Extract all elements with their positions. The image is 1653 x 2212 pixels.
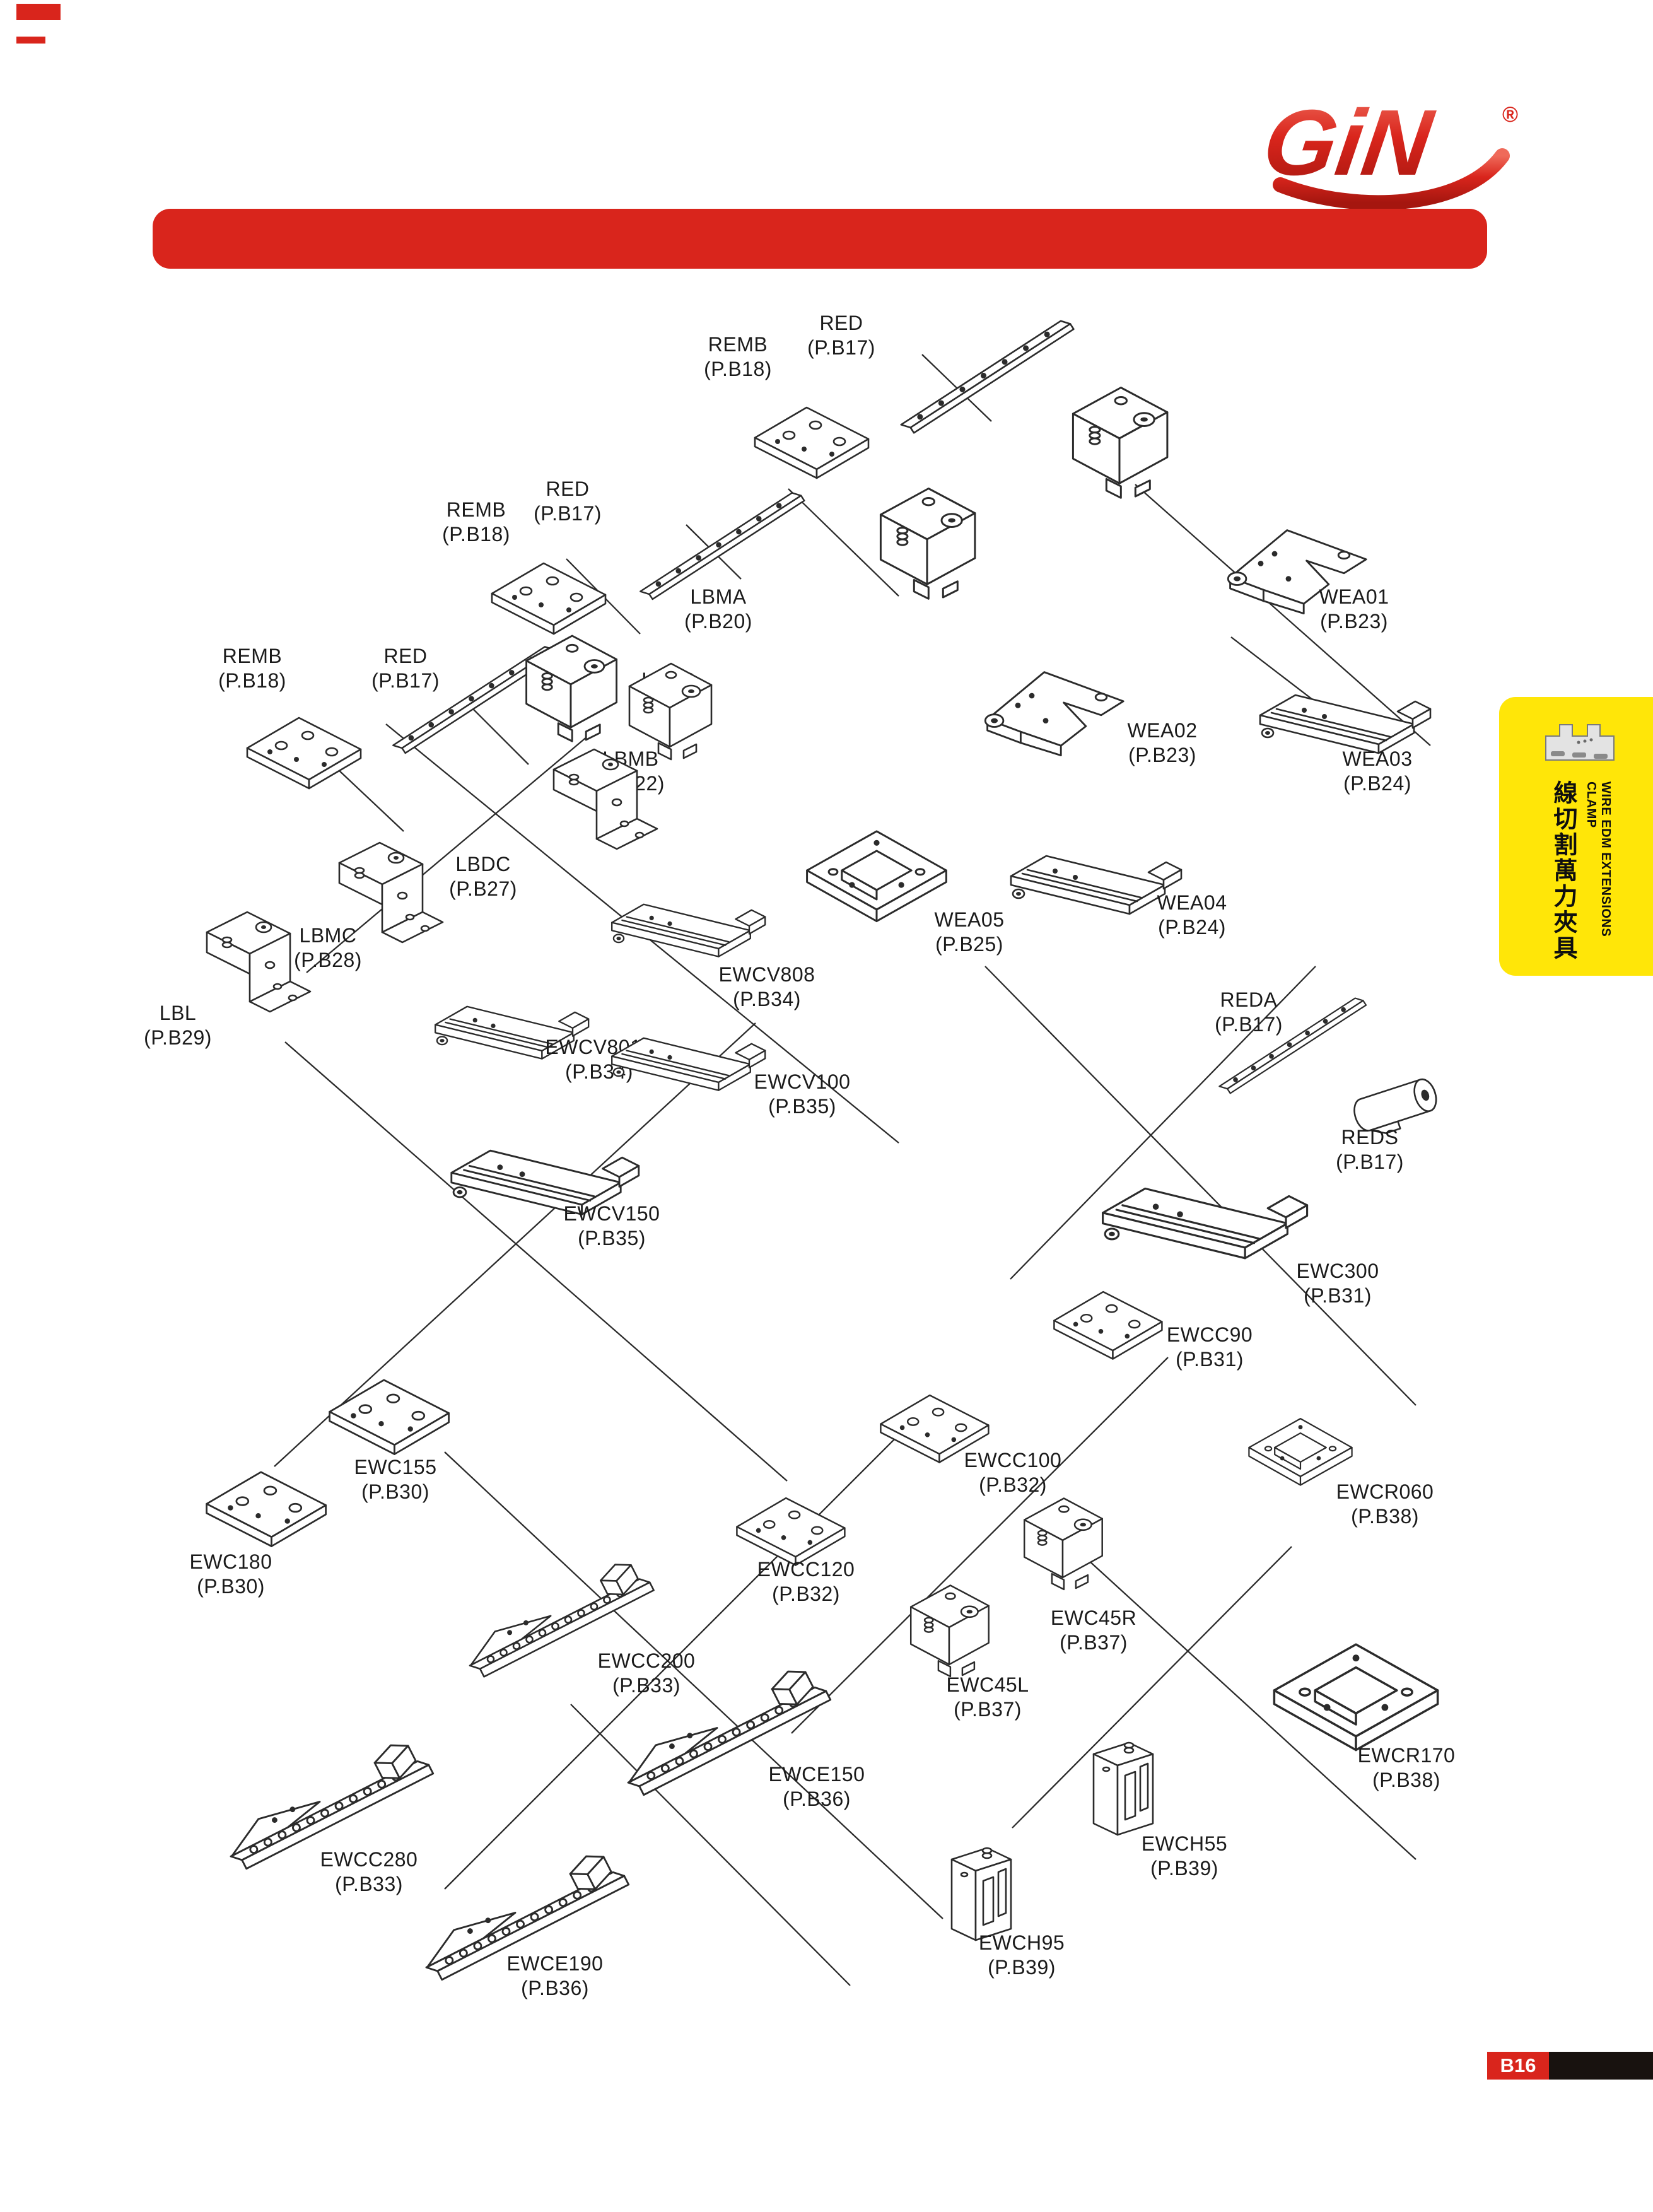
part-page-ref: (P.B17) (371, 669, 440, 693)
page-number-badge: B16 (1487, 2052, 1549, 2080)
part-label: EWCR060 (P.B38) (1336, 1480, 1434, 1529)
part-label: EWC300 (P.B31) (1296, 1259, 1379, 1308)
part-model: REMB (704, 332, 772, 357)
part-model: EWCH95 (979, 1931, 1065, 1955)
side-tab-title-english: WIRE EDM EXTENSIONS CLAMP (1584, 781, 1613, 976)
part-model: EWCH55 (1142, 1832, 1227, 1856)
part-model: EWC180 (189, 1550, 272, 1574)
part-model: REMB (442, 498, 510, 522)
part-page-ref: (P.B35) (564, 1226, 660, 1251)
part-drawing (974, 785, 1201, 974)
part-model: EWC45L (946, 1673, 1029, 1697)
part-model: EWCC280 (320, 1847, 418, 1872)
part-page-ref: (P.B39) (1142, 1856, 1227, 1881)
part-label: REDA (P.B17) (1215, 988, 1283, 1037)
part-label: EWCV100 (P.B35) (754, 1070, 851, 1119)
part-page-ref: (P.B35) (754, 1094, 851, 1119)
part-page-ref: (P.B18) (442, 522, 510, 547)
part-label: REDS (P.B17) (1336, 1125, 1404, 1174)
part-model: LBL (144, 1001, 212, 1026)
part-model: EWCR060 (1336, 1480, 1434, 1504)
part-label: WEA02 (P.B23) (1128, 718, 1198, 768)
part-model: WEA04 (1157, 891, 1227, 915)
part-label: EWCE190 (P.B36) (507, 1952, 604, 2001)
part-model: RED (534, 477, 602, 501)
clamp-thumbnail-icon (1542, 718, 1618, 771)
part-page-ref: (P.B24) (1157, 915, 1227, 940)
part-page-ref: (P.B30) (189, 1574, 272, 1599)
part-label: REMB (P.B18) (704, 332, 772, 382)
part-model: EWC300 (1296, 1259, 1379, 1284)
catalog-page: GiN ® REMB (P.B18) RED (P.B17) (0, 0, 1653, 2212)
part-label: WEA03 (P.B24) (1343, 747, 1413, 796)
part-model: EWCV150 (564, 1202, 660, 1226)
part-label: WEA04 (P.B24) (1157, 891, 1227, 940)
part-page-ref: (P.B18) (704, 357, 772, 382)
part-label: RED (P.B17) (807, 311, 875, 360)
part-drawing (1224, 624, 1451, 814)
part-page-ref: (P.B24) (1343, 771, 1413, 796)
part-label: EWCR170 (P.B38) (1358, 1743, 1456, 1793)
part-label: EWCV150 (P.B35) (564, 1202, 660, 1251)
part-label: EWCH55 (P.B39) (1142, 1832, 1227, 1881)
part-page-ref: (P.B17) (807, 336, 875, 360)
part-model: EWCR170 (1358, 1743, 1456, 1768)
part-model: EWC45R (1051, 1606, 1136, 1630)
part-model: WEA02 (1128, 718, 1198, 743)
part-page-ref: (P.B36) (507, 1976, 604, 2001)
part-label: RED (P.B17) (534, 477, 602, 526)
part-label: EWCE150 (P.B36) (769, 1762, 865, 1811)
part-page-ref: (P.B38) (1358, 1768, 1456, 1793)
part-label: REMB (P.B18) (218, 644, 286, 693)
part-model: EWCE150 (769, 1762, 865, 1787)
part-model: REMB (218, 644, 286, 669)
part-page-ref: (P.B39) (979, 1955, 1065, 1980)
part-model: REDS (1336, 1125, 1404, 1150)
part-page-ref: (P.B17) (1215, 1012, 1283, 1037)
part-page-ref: (P.B36) (769, 1787, 865, 1811)
part-label: EWCH95 (P.B39) (979, 1931, 1065, 1980)
part-drawing (814, 445, 1041, 634)
part-label: EWCC280 (P.B33) (320, 1847, 418, 1897)
part-label: RED (P.B17) (371, 644, 440, 693)
part-page-ref: (P.B23) (1128, 743, 1198, 768)
part-label: EWC45R (P.B37) (1051, 1606, 1136, 1655)
part-page-ref: (P.B17) (534, 501, 602, 526)
part-label: LBL (P.B29) (144, 1001, 212, 1050)
part-page-ref: (P.B18) (218, 669, 286, 693)
part-model: EWCC90 (1167, 1323, 1253, 1347)
parts-diagram: REMB (P.B18) RED (P.B17) LBDA (P.B19) (0, 0, 1653, 2212)
part-label: EWC180 (P.B30) (189, 1550, 272, 1599)
part-page-ref: (P.B38) (1336, 1504, 1434, 1529)
part-model: RED (371, 644, 440, 669)
page-number: B16 (1500, 2054, 1536, 2077)
part-page-ref: (P.B31) (1296, 1284, 1379, 1308)
part-page-ref: (P.B29) (144, 1026, 212, 1050)
part-model: EWCV100 (754, 1070, 851, 1094)
part-model: EWCE190 (507, 1952, 604, 1976)
part-model: WEA03 (1343, 747, 1413, 771)
page-badge-bar (1549, 2052, 1653, 2080)
part-label: REMB (P.B18) (442, 498, 510, 547)
part-page-ref: (P.B37) (1051, 1630, 1136, 1655)
part-model: WEA01 (1319, 585, 1389, 609)
part-model: RED (807, 311, 875, 336)
part-page-ref: (P.B17) (1336, 1150, 1404, 1174)
part-model: REDA (1215, 988, 1283, 1012)
side-tab-title-chinese: 線切割萬力夾具 (1546, 780, 1580, 961)
side-tab-wire-edm-extensions-clamp[interactable]: 線切割萬力夾具 WIRE EDM EXTENSIONS CLAMP (1499, 697, 1653, 976)
part-model: LBMA (684, 585, 752, 609)
part-page-ref: (P.B33) (320, 1872, 418, 1897)
